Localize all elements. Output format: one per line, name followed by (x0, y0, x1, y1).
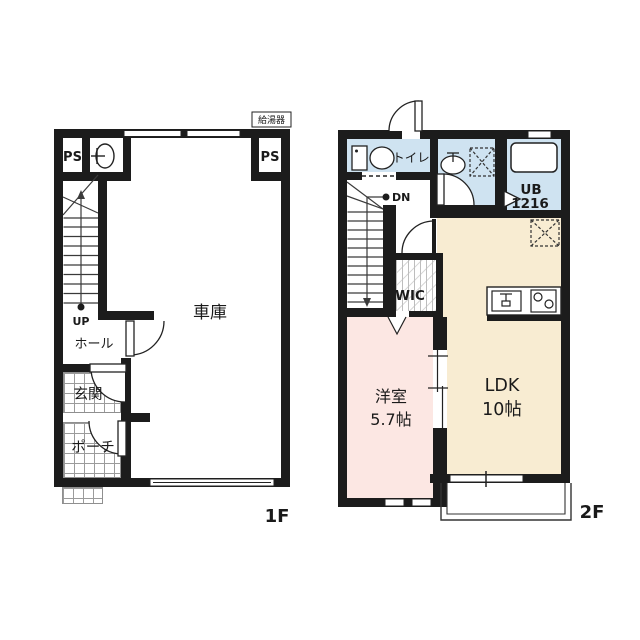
ps-left-label: PS (63, 150, 82, 165)
entrance-label: 玄関 (74, 386, 103, 403)
wic-label: WIC (395, 288, 425, 304)
floor-2-plan: トイレ DN UB 1216 WIC 洋室 5.7帖 LDK 10帖 2F (338, 101, 604, 523)
washer-pan-icon (470, 148, 494, 176)
up-label: UP (73, 315, 90, 328)
kitchen-counter (487, 287, 561, 321)
porch-label: ポーチ (71, 439, 115, 456)
floor-1-plan: PS PS 給湯器 車庫 ホール 玄関 ポーチ UP 1F (54, 112, 291, 527)
floor-plan-page: PS PS 給湯器 車庫 ホール 玄関 ポーチ UP 1F (0, 0, 640, 640)
stairs-1f (63, 175, 98, 311)
sliding-door-bedroom-ldk (428, 350, 448, 428)
garage-shutter-door (150, 479, 274, 486)
bedroom-window-right (412, 499, 431, 506)
wic-folding-door (388, 317, 406, 334)
dn-label: DN (392, 191, 410, 204)
ldk-label: LDK (485, 376, 520, 396)
water-heater-label: 給湯器 (258, 114, 285, 126)
washbasin-icon (441, 153, 465, 174)
garage-label: 車庫 (193, 303, 227, 323)
western-room-size-label: 5.7帖 (370, 410, 411, 429)
fridge-space-icon (531, 220, 559, 246)
unit-bath-label-line2: 1216 (511, 196, 549, 212)
walls-1f (54, 129, 290, 487)
water-heater-icon (91, 144, 114, 168)
door-hall-to-washroom (437, 174, 474, 205)
western-room-label: 洋室 (375, 387, 407, 406)
door-hall-to-garage (126, 321, 164, 356)
floor-plan-linework: PS PS 給湯器 車庫 ホール 玄関 ポーチ UP 1F (0, 0, 640, 640)
balcony (441, 483, 571, 520)
bathtub-icon (511, 143, 557, 172)
ps-right-label: PS (261, 150, 280, 165)
kitchen-sink-icon (492, 291, 521, 311)
ldk-size-label: 10帖 (482, 400, 522, 420)
floor-1-label: 1F (265, 506, 290, 527)
toilet-label: トイレ (392, 150, 430, 165)
toilet-icon (352, 146, 394, 170)
entry-door-2f (389, 101, 422, 131)
bedroom-window-left (385, 499, 404, 506)
floor-2-label: 2F (580, 502, 605, 523)
hall-label: ホール (74, 337, 113, 352)
door-hall-to-ldk (402, 219, 436, 253)
bath-window (528, 131, 551, 138)
